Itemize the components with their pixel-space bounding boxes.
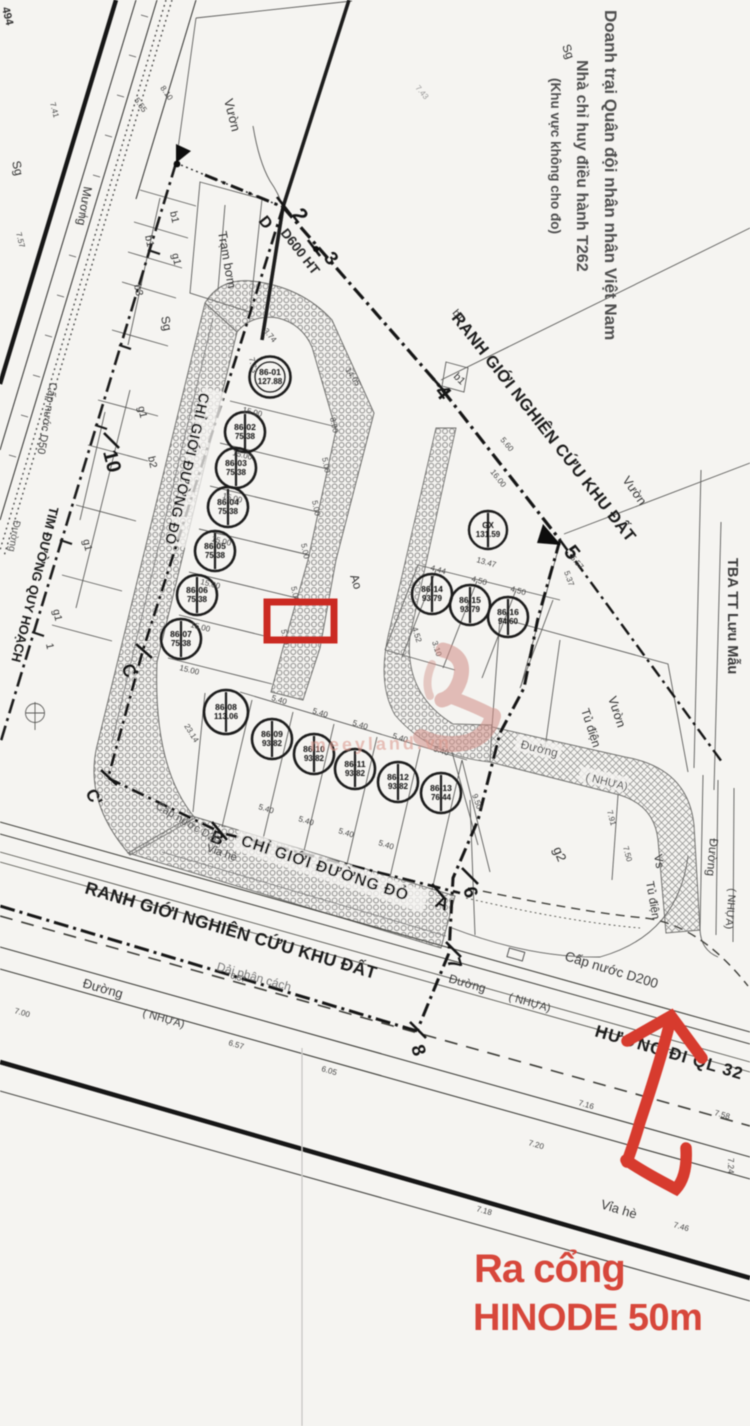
svg-text:76.44: 76.44 bbox=[431, 793, 452, 802]
svg-text:75.38: 75.38 bbox=[226, 468, 247, 477]
svg-text:86-13: 86-13 bbox=[430, 783, 452, 793]
svg-text:86-15: 86-15 bbox=[459, 595, 481, 605]
svg-text:127.88: 127.88 bbox=[258, 377, 283, 386]
svg-text:Sg: Sg bbox=[158, 315, 175, 332]
svg-text:86-02: 86-02 bbox=[234, 422, 256, 432]
svg-text:HINODE 50m: HINODE 50m bbox=[473, 1297, 702, 1339]
svg-text:7.24: 7.24 bbox=[726, 1158, 735, 1174]
svg-text:86-12: 86-12 bbox=[387, 772, 409, 782]
svg-text:86-07: 86-07 bbox=[170, 629, 192, 639]
svg-text:Nhà chỉ huy điều hành T262: Nhà chỉ huy điều hành T262 bbox=[573, 60, 590, 272]
svg-text:93.82: 93.82 bbox=[262, 739, 283, 748]
svg-text:131.59: 131.59 bbox=[476, 530, 501, 539]
svg-text:TBA TT Lưu Mẫu: TBA TT Lưu Mẫu bbox=[724, 558, 741, 674]
svg-text:GX: GX bbox=[482, 521, 494, 530]
svg-text:75.38: 75.38 bbox=[218, 507, 239, 516]
svg-text:93.79: 93.79 bbox=[422, 594, 443, 603]
svg-text:Ra cổng: Ra cổng bbox=[474, 1247, 625, 1291]
svg-text:75.38: 75.38 bbox=[187, 595, 208, 604]
svg-text:93.82: 93.82 bbox=[345, 769, 366, 778]
svg-text:86-08: 86-08 bbox=[215, 702, 237, 712]
svg-text:meeyland.vn: meeyland.vn bbox=[310, 733, 452, 755]
svg-text:75.38: 75.38 bbox=[235, 432, 256, 441]
svg-text:86-09: 86-09 bbox=[261, 729, 283, 739]
svg-text:94.60: 94.60 bbox=[498, 617, 519, 626]
svg-text:Doanh trại Quân đội nhân nhân: Doanh trại Quân đội nhân nhân Việt Nam bbox=[601, 10, 620, 340]
svg-text:93.82: 93.82 bbox=[388, 782, 409, 791]
svg-text:86-01: 86-01 bbox=[259, 367, 281, 377]
svg-text:75.38: 75.38 bbox=[171, 639, 192, 648]
svg-text:(Khu vực không cho đo): (Khu vực không cho đo) bbox=[548, 78, 563, 234]
svg-text:Vs: Vs bbox=[651, 853, 667, 869]
svg-text:86-16: 86-16 bbox=[497, 607, 519, 617]
svg-text:86-11: 86-11 bbox=[344, 759, 366, 769]
svg-text:93.82: 93.82 bbox=[304, 754, 325, 763]
svg-text:113.06: 113.06 bbox=[214, 712, 239, 721]
svg-text:93.79: 93.79 bbox=[460, 605, 481, 614]
svg-text:75.38: 75.38 bbox=[205, 551, 226, 560]
svg-text:86-14: 86-14 bbox=[421, 584, 443, 594]
